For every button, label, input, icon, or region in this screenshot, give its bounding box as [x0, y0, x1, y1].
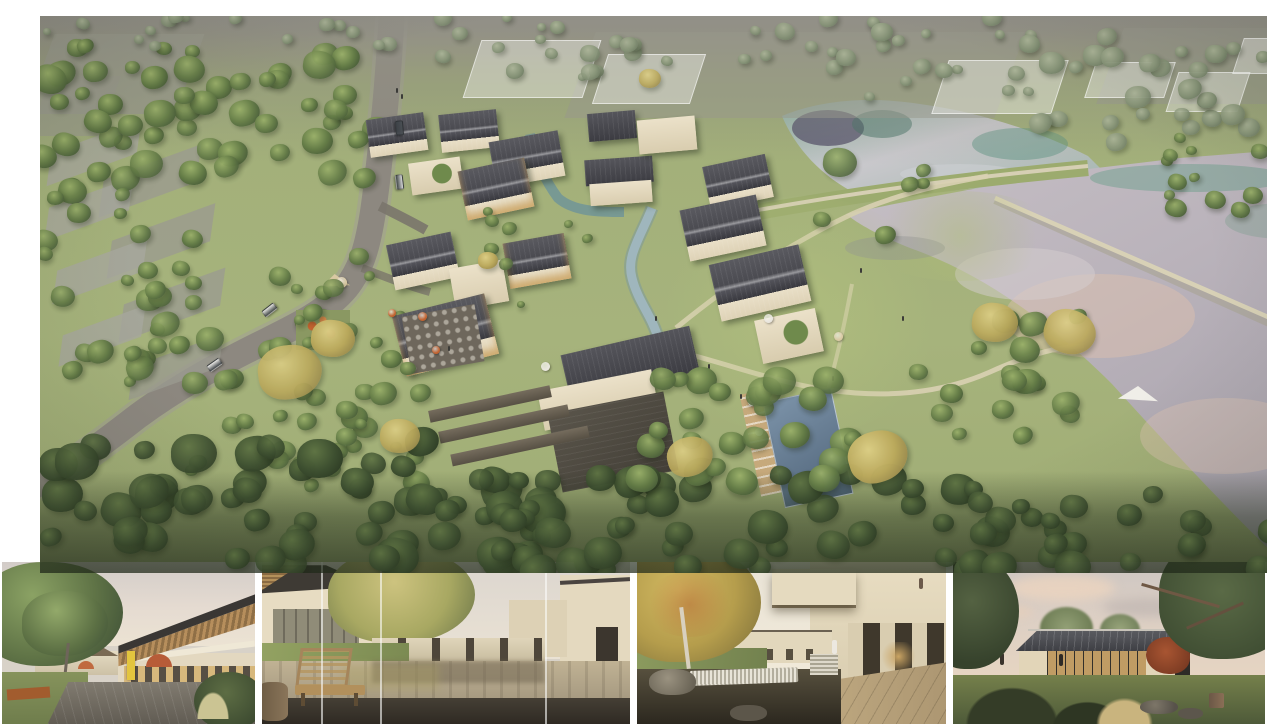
house	[637, 116, 698, 155]
tree	[901, 478, 923, 497]
tree	[346, 26, 360, 38]
thumbnail-strip	[0, 562, 1267, 724]
tree	[674, 555, 702, 573]
aerial-masterplan-render	[40, 16, 1267, 573]
glass-joint-line	[321, 562, 323, 724]
umbrella	[834, 332, 843, 341]
tree	[779, 604, 841, 640]
thumbnail-waterfall-courtyard	[637, 562, 946, 724]
rock	[1140, 700, 1177, 715]
tree	[535, 35, 546, 45]
umbrella	[418, 312, 427, 321]
rock	[649, 669, 695, 695]
glass-joint-line	[545, 562, 547, 724]
person	[448, 346, 450, 351]
umbrella	[432, 346, 440, 354]
tree	[738, 54, 751, 65]
person	[832, 640, 837, 654]
bench-leg	[354, 693, 358, 706]
person	[740, 394, 742, 399]
tree	[368, 545, 399, 571]
person	[902, 316, 904, 321]
tree	[1189, 62, 1208, 78]
log-stool	[262, 682, 288, 721]
tree-stump	[1209, 693, 1225, 708]
umbrella	[541, 362, 550, 371]
tree	[1256, 51, 1267, 64]
house	[587, 110, 637, 142]
thumbnail-dusk-pavilion	[953, 562, 1265, 724]
presentation-board	[0, 0, 1267, 724]
cloud	[1009, 575, 1115, 601]
rock	[1178, 708, 1203, 719]
person	[655, 316, 657, 321]
person-on-balcony	[919, 578, 923, 589]
tree	[1039, 51, 1065, 74]
wooden-bench	[295, 648, 365, 706]
waterfall	[810, 654, 838, 675]
umbrella	[388, 309, 396, 317]
tree	[50, 93, 69, 109]
tree	[586, 465, 616, 491]
autumn-foliage	[643, 572, 736, 637]
ornamental-grass	[194, 687, 232, 719]
car	[395, 120, 404, 136]
tree	[349, 248, 369, 265]
tree	[1182, 119, 1200, 134]
tree	[971, 341, 987, 355]
person	[860, 268, 862, 273]
bright-roof-ridge	[1028, 629, 1178, 631]
thumbnail-bench-pond	[262, 562, 630, 724]
building-volume	[560, 575, 630, 672]
tree	[1002, 85, 1015, 96]
tree	[478, 251, 498, 268]
person	[401, 94, 403, 99]
tree	[1174, 108, 1190, 122]
tree	[333, 20, 346, 31]
cantilevered-balcony	[772, 569, 856, 605]
person	[396, 88, 398, 93]
thumbnail-street-plaza	[2, 562, 255, 724]
tree	[1117, 504, 1143, 526]
warm-interior-glow	[881, 642, 916, 671]
bench-leg	[301, 693, 305, 706]
person	[1059, 654, 1063, 666]
tree	[400, 361, 416, 375]
bench-back	[295, 648, 353, 687]
glass-joint-line	[380, 562, 382, 724]
house	[589, 180, 652, 206]
rock	[730, 705, 767, 721]
tree	[469, 469, 494, 490]
umbrella	[764, 314, 773, 323]
yellow-shop-sign	[127, 651, 135, 680]
car	[395, 174, 405, 190]
